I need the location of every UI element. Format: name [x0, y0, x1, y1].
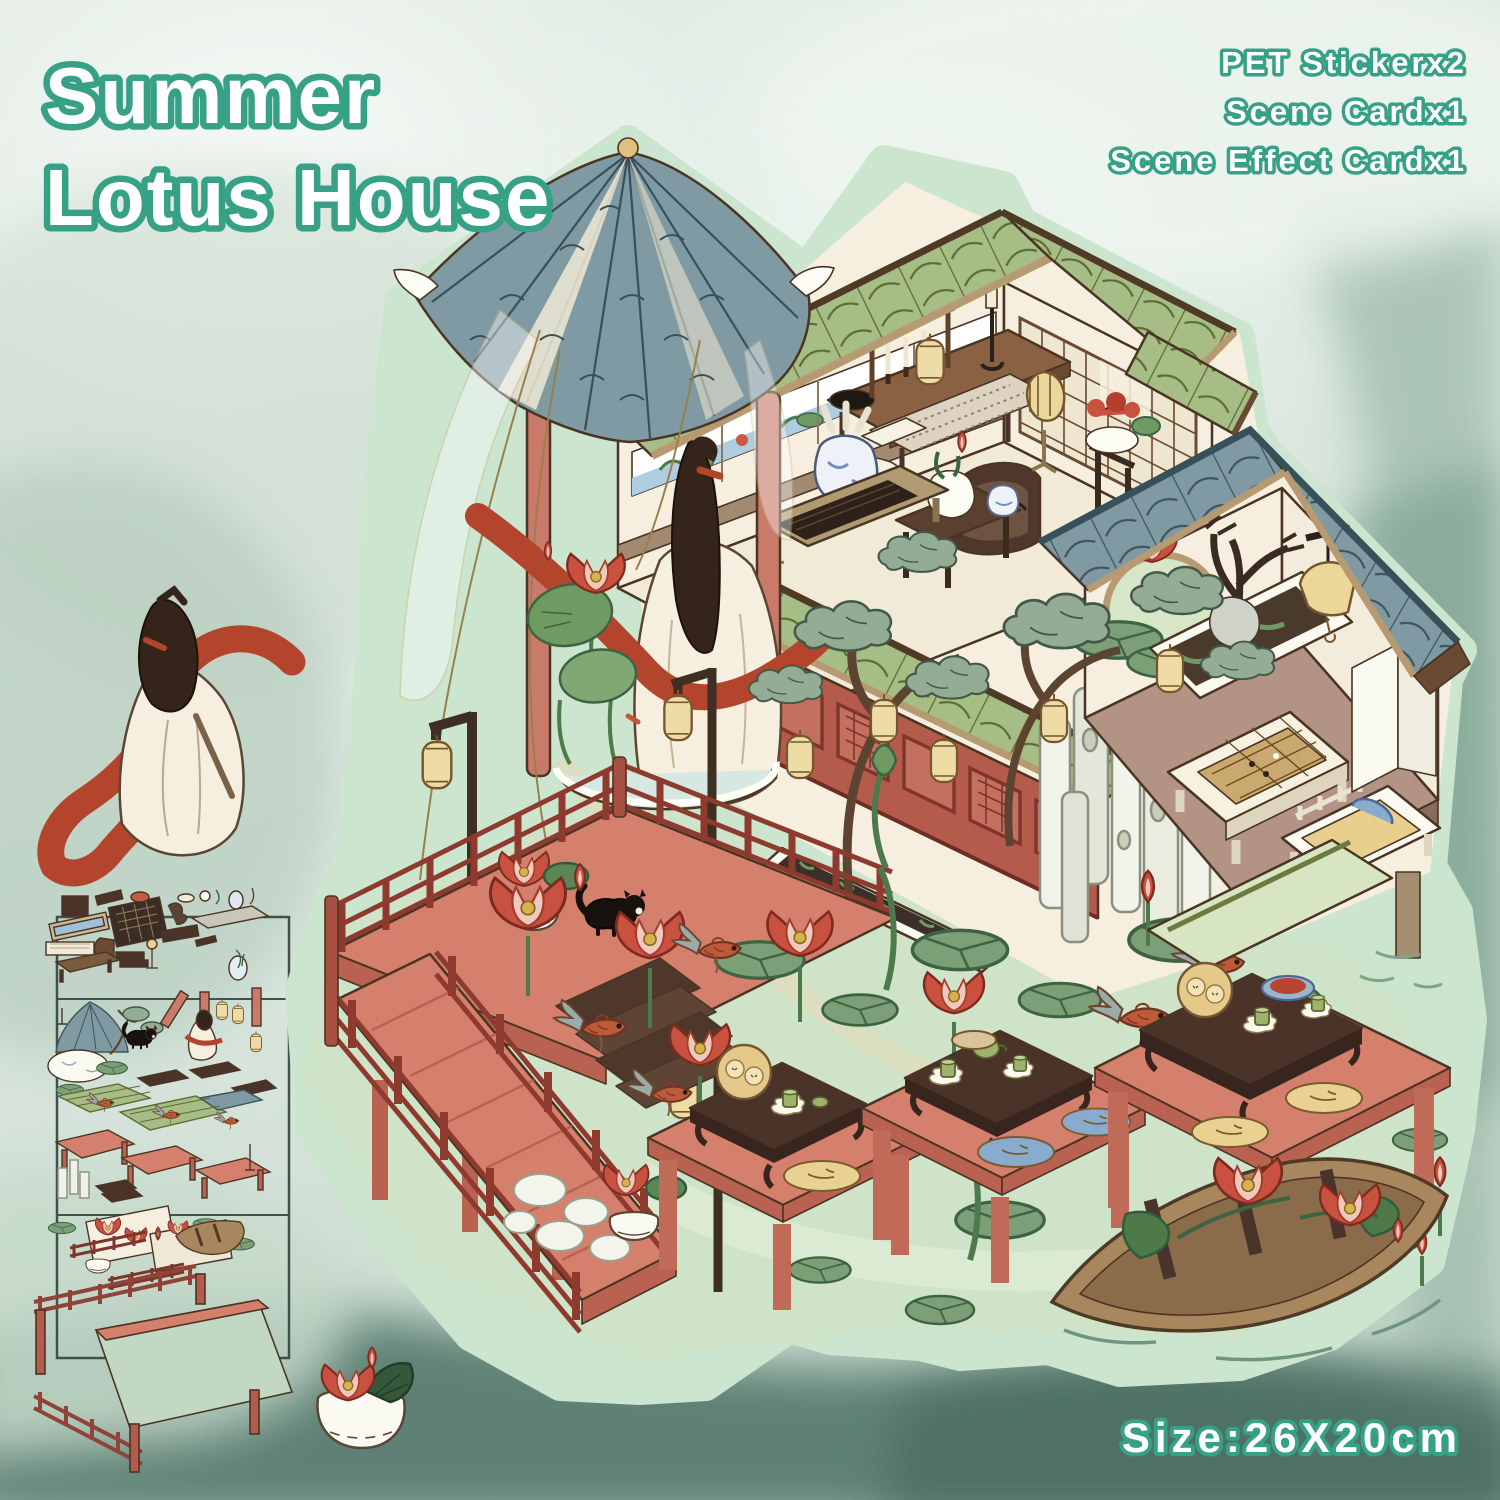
seat-cushion: [1286, 1083, 1362, 1113]
bun-basket-icon: [1178, 963, 1232, 1017]
illustration-scene: Summer Lotus House PET Stickerx2 Scene C…: [0, 0, 1500, 1500]
main-sticker: [300, 138, 1472, 1390]
bun-basket-icon: [717, 1045, 771, 1099]
title-line-2: Lotus House: [45, 153, 551, 242]
contents-item-3: Scene Effect Cardx1: [1110, 143, 1467, 178]
lantern-icon: [217, 999, 228, 1019]
seat-cushion: [978, 1137, 1054, 1167]
seat-cushion: [1192, 1117, 1268, 1147]
product-image: Summer Lotus House PET Stickerx2 Scene C…: [0, 0, 1500, 1500]
lantern-icon: [423, 735, 452, 788]
size-label: Size:26X20cm: [1122, 1414, 1462, 1461]
lilypad-icon: [97, 1062, 128, 1075]
lantern-icon: [787, 730, 813, 778]
title-line-1: Summer: [45, 51, 377, 140]
seat-cushion: [784, 1161, 860, 1191]
blue-white-vase: [988, 485, 1019, 516]
roof-finial: [618, 138, 638, 158]
contents-item-1: PET Stickerx2: [1221, 45, 1467, 80]
contents-item-2: Scene Cardx1: [1226, 94, 1467, 129]
